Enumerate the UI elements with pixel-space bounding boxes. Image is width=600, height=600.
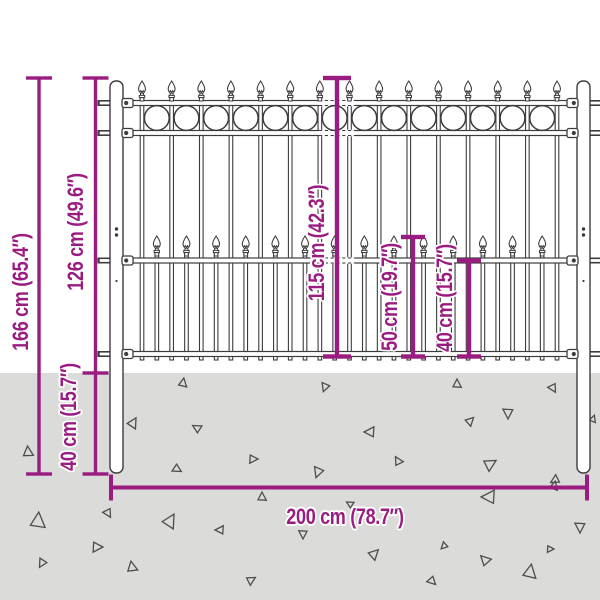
fence-dimension-diagram: 166 cm (65.4″) 126 cm (49.6″) 40 cm (15.… bbox=[0, 0, 600, 600]
dim-line-picket-height bbox=[411, 237, 415, 357]
spear-collar bbox=[407, 98, 411, 101]
spear-collar bbox=[170, 98, 174, 101]
dim-line-total-height bbox=[37, 78, 40, 474]
spear-head-icon bbox=[450, 236, 457, 248]
dim-line-bottom-section-cap bbox=[457, 258, 481, 262]
bracket-bolt bbox=[124, 131, 128, 135]
circle-ornament bbox=[293, 106, 318, 131]
spear-head-icon bbox=[391, 236, 398, 248]
circle-ornament bbox=[352, 106, 377, 131]
fence-short-bar bbox=[303, 252, 307, 360]
spear-head-icon bbox=[257, 81, 264, 93]
spear-collar bbox=[259, 98, 263, 101]
spear-head-icon bbox=[316, 81, 323, 93]
spear-collar bbox=[214, 253, 218, 256]
dim-line-bottom-section-cap bbox=[457, 354, 481, 358]
spear-collar bbox=[288, 98, 292, 101]
fence-bars bbox=[140, 99, 559, 360]
fence-short-bar bbox=[274, 252, 278, 360]
dim-line-above-below-ground-cap bbox=[83, 76, 109, 79]
bracket-bolt bbox=[572, 101, 576, 105]
fence-bar bbox=[526, 99, 530, 360]
dim-line-above-below-ground-cap bbox=[83, 472, 109, 475]
spear-collar bbox=[229, 98, 233, 101]
spear-collar bbox=[348, 98, 352, 101]
spear-head-icon bbox=[242, 236, 249, 248]
fence-bar bbox=[288, 99, 292, 360]
spear-collar bbox=[555, 98, 559, 101]
bracket-bolt bbox=[124, 258, 128, 262]
post-hole bbox=[582, 227, 585, 230]
circle-ornament bbox=[144, 106, 169, 131]
circle-ornament bbox=[470, 106, 495, 131]
spear-head-icon bbox=[376, 81, 383, 93]
post-hole bbox=[115, 280, 117, 282]
circle-ornament bbox=[530, 106, 555, 131]
bracket-bolt bbox=[572, 352, 576, 356]
circle-ornament bbox=[204, 106, 229, 131]
fence-short-bar bbox=[392, 252, 396, 360]
circle-ornament bbox=[322, 106, 347, 131]
spear-collar bbox=[511, 253, 515, 256]
fence-bar bbox=[555, 99, 559, 360]
fence-bar bbox=[437, 99, 441, 360]
dim-line-above-below-ground-cap bbox=[83, 371, 109, 374]
spear-head-icon bbox=[287, 81, 294, 93]
dim-line-total-width-cap bbox=[109, 475, 113, 501]
dim-line-total-height-cap bbox=[26, 472, 52, 475]
spear-head-icon bbox=[198, 81, 205, 93]
spear-head-icon bbox=[494, 81, 501, 93]
spear-collar bbox=[185, 253, 189, 256]
dim-line-picket-height-cap bbox=[401, 235, 425, 239]
bracket-bolt bbox=[572, 131, 576, 135]
fence-short-bar bbox=[511, 252, 515, 360]
spear-head-icon bbox=[465, 81, 472, 93]
dim-line-above-below-ground bbox=[94, 78, 97, 474]
spear-head-icon bbox=[272, 236, 279, 248]
spear-collar bbox=[451, 253, 455, 256]
spear-head-icon bbox=[524, 81, 531, 93]
bracket-bolt bbox=[124, 101, 128, 105]
spear-collar bbox=[303, 253, 307, 256]
spear-head-icon bbox=[168, 81, 175, 93]
spear-head-icon bbox=[361, 236, 368, 248]
spear-head-icon bbox=[539, 236, 546, 248]
fence-bar bbox=[199, 99, 203, 360]
dim-line-bottom-section bbox=[467, 261, 471, 357]
bracket-bolt bbox=[572, 258, 576, 262]
spear-collar bbox=[140, 98, 144, 101]
spear-head-icon bbox=[405, 81, 412, 93]
spear-collar bbox=[318, 98, 322, 101]
fence-post bbox=[110, 81, 123, 473]
fence-bar bbox=[140, 99, 144, 360]
circle-ornament bbox=[441, 106, 466, 131]
diagram-canvas bbox=[0, 0, 600, 600]
circle-ornament bbox=[233, 106, 258, 131]
fence-bar bbox=[259, 99, 263, 360]
fence-short-bar bbox=[155, 252, 159, 360]
fence-bar bbox=[377, 99, 381, 360]
circle-ornament bbox=[382, 106, 407, 131]
spear-collar bbox=[526, 98, 530, 101]
post-hole bbox=[582, 280, 584, 282]
spear-collar bbox=[437, 98, 441, 101]
spear-collar bbox=[422, 253, 426, 256]
circle-ornament bbox=[263, 106, 288, 131]
spear-collar bbox=[466, 98, 470, 101]
spear-collar bbox=[274, 253, 278, 256]
fence-short-bar bbox=[363, 252, 367, 360]
fence-bar bbox=[348, 99, 352, 360]
fence-bar bbox=[170, 99, 174, 360]
spear-head-icon bbox=[479, 236, 486, 248]
post-hole bbox=[115, 233, 118, 236]
fence-bar bbox=[229, 99, 233, 360]
dim-line-panel-height bbox=[335, 78, 339, 357]
spear-collar bbox=[199, 98, 203, 101]
post-hole bbox=[115, 227, 118, 230]
bracket-bolt bbox=[124, 352, 128, 356]
fence-short-bar bbox=[481, 252, 485, 360]
spear-collar bbox=[244, 253, 248, 256]
spear-collar bbox=[392, 253, 396, 256]
spear-head-icon bbox=[228, 81, 235, 93]
spear-head-icon bbox=[509, 236, 516, 248]
spear-collar bbox=[363, 253, 367, 256]
spear-collar bbox=[481, 253, 485, 256]
fence-short-bar bbox=[451, 252, 455, 360]
dim-line-total-height-cap bbox=[26, 76, 52, 79]
circle-ornament bbox=[411, 106, 436, 131]
fence-short-bar bbox=[422, 252, 426, 360]
spear-collar bbox=[540, 253, 544, 256]
fence-short-bar bbox=[214, 252, 218, 360]
fence-bar bbox=[407, 99, 411, 360]
spear-head-icon bbox=[153, 236, 160, 248]
fence-bar bbox=[318, 99, 322, 360]
fence-bar bbox=[496, 99, 500, 360]
spear-collar bbox=[377, 98, 381, 101]
dim-line-picket-height-cap bbox=[401, 354, 425, 358]
spear-head-icon bbox=[435, 81, 442, 93]
dim-line-panel-height-cap bbox=[323, 76, 351, 80]
fence-short-bar bbox=[185, 252, 189, 360]
spear-head-icon bbox=[302, 236, 309, 248]
spear-head-icon bbox=[139, 81, 146, 93]
dim-line-total-width bbox=[111, 486, 587, 490]
dim-line-panel-height-cap bbox=[323, 354, 351, 358]
fence-short-bar bbox=[244, 252, 248, 360]
fence-post bbox=[577, 81, 590, 473]
spear-collar bbox=[155, 253, 159, 256]
dim-line-total-width-cap bbox=[585, 475, 589, 501]
spear-head-icon bbox=[213, 236, 220, 248]
circle-ornament bbox=[500, 106, 525, 131]
post-hole bbox=[582, 233, 585, 236]
spear-head-icon bbox=[554, 81, 561, 93]
fence-short-bar bbox=[540, 252, 544, 360]
spear-head-icon bbox=[183, 236, 190, 248]
circle-ornament bbox=[174, 106, 199, 131]
spear-collar bbox=[496, 98, 500, 101]
spear-head-icon bbox=[346, 81, 353, 93]
